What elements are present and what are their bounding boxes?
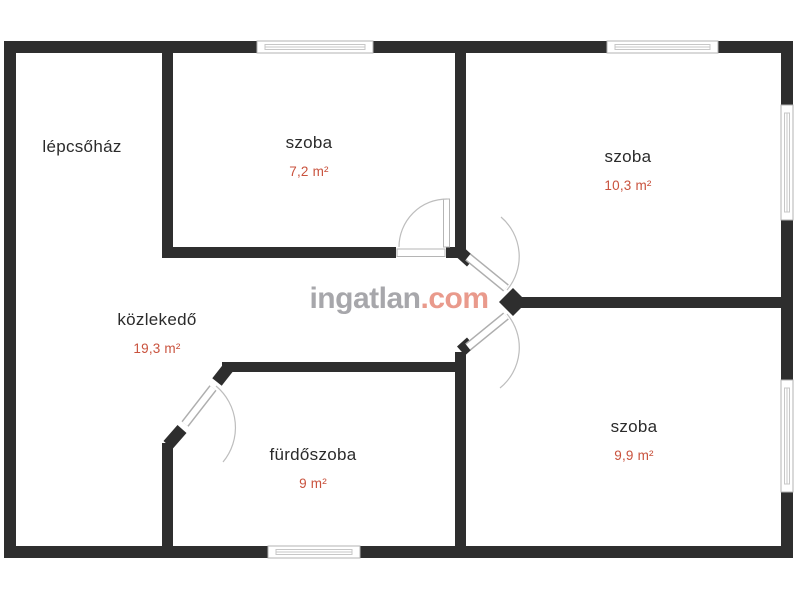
door-room3 [468, 314, 519, 388]
wall-stairwell-right [162, 53, 173, 258]
wall-diag-stub-bath-top [217, 368, 228, 382]
wall-room2-room3 [513, 297, 781, 308]
wall-bathroom-room3 [455, 362, 466, 546]
window-top-left [257, 41, 373, 53]
wall-bathroom-top [222, 362, 466, 372]
wall-room1-bottom-left [162, 247, 396, 258]
interior-walls [162, 53, 781, 546]
window-bottom [268, 546, 360, 558]
wall-diag-stub-bath-bottom [168, 429, 182, 445]
wall-corner-block [455, 352, 466, 372]
floorplan: lépcsőház szoba 7,2 m² szoba 10,3 m² köz… [0, 0, 800, 600]
window-right-lower [781, 380, 793, 492]
door-room2 [468, 217, 519, 290]
doors [185, 199, 519, 462]
door-room1 [397, 199, 450, 257]
wall-room1-room2 [455, 53, 466, 258]
door-bathroom [185, 386, 235, 462]
window-top-right [607, 41, 718, 53]
window-right-upper [781, 105, 793, 220]
wall-center-diamond [499, 288, 527, 316]
floorplan-drawing [0, 0, 800, 600]
wall-bathroom-left [162, 443, 173, 546]
